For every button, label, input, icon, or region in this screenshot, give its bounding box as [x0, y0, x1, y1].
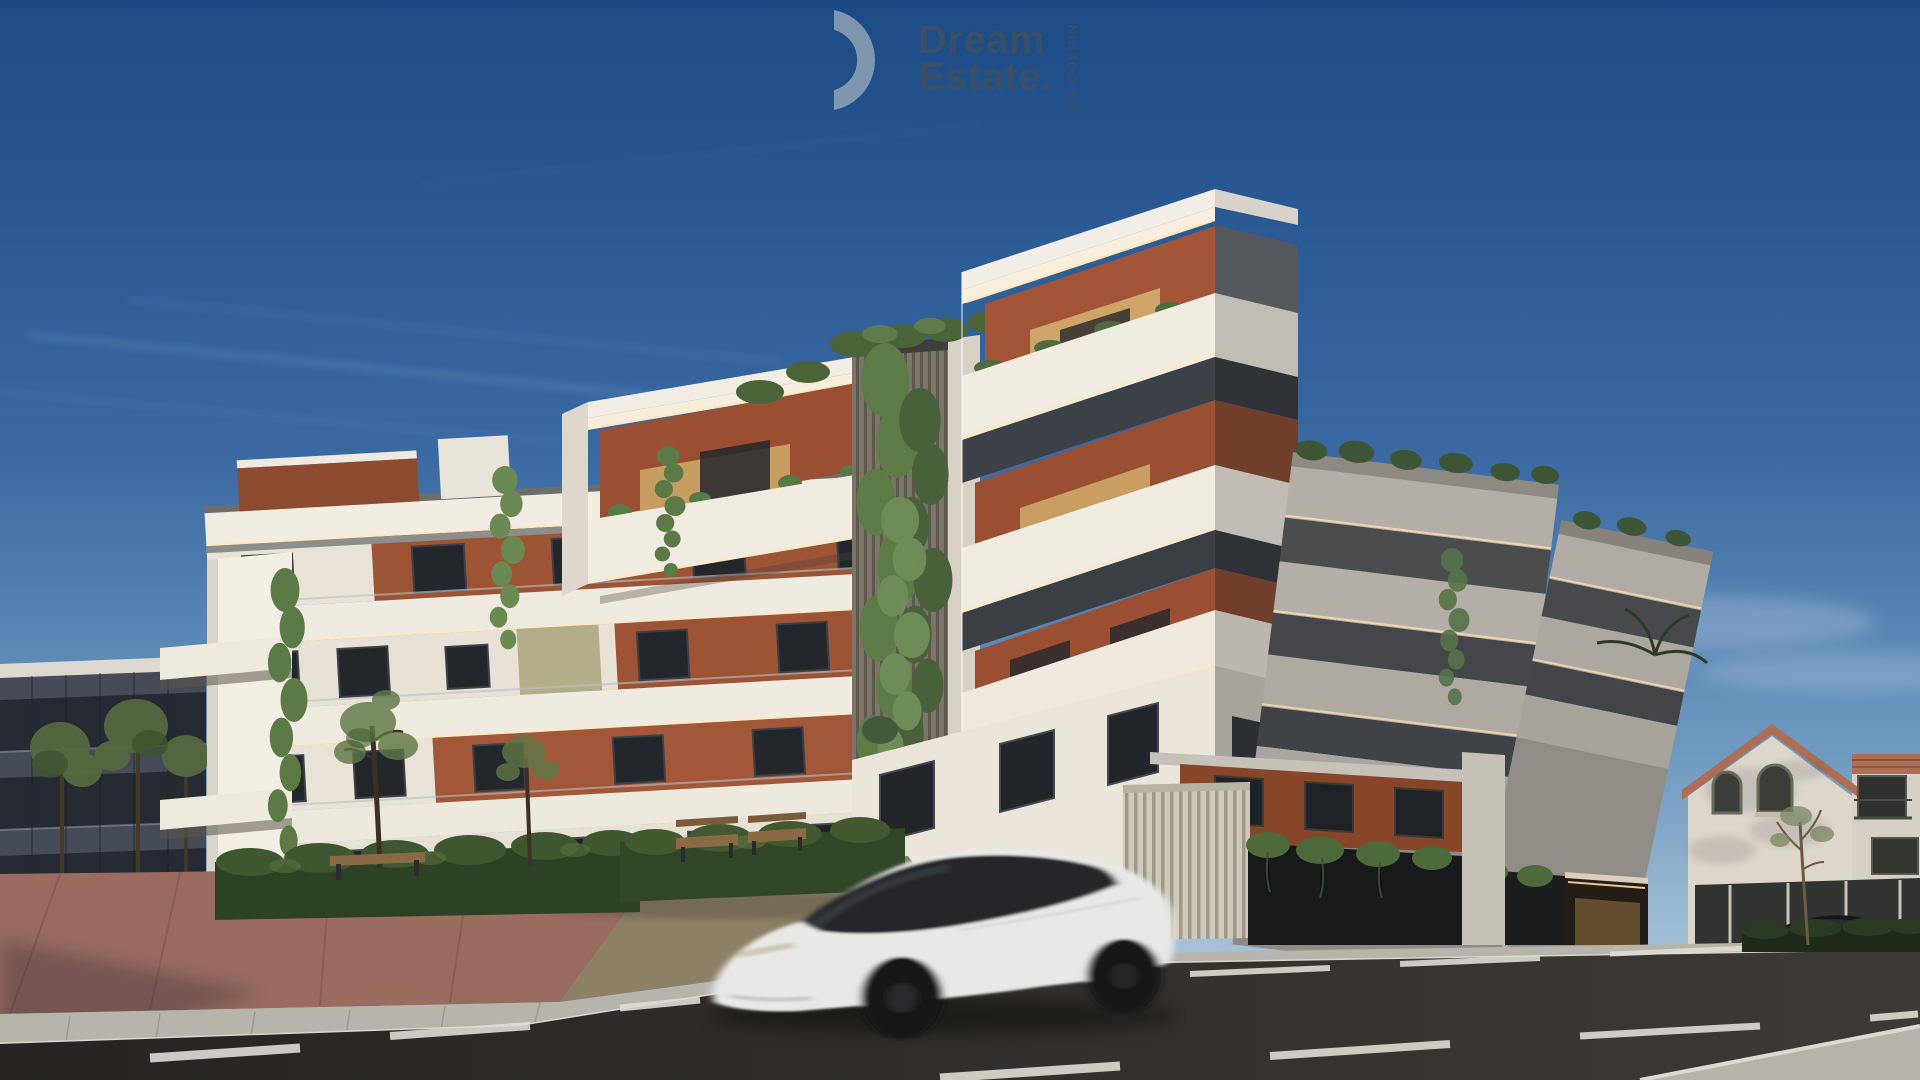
- vertical-tagline: BY COLPIN: [1066, 24, 1080, 110]
- logo: Dream Estate.: [834, 8, 1053, 112]
- half-circle-logo-icon: [834, 8, 888, 112]
- garage-interior-glow: [1575, 898, 1640, 945]
- render-canvas: Dream Estate. BY COLPIN: [0, 0, 1920, 1080]
- low-hedge: [1741, 918, 1920, 952]
- brand-line2: Estate.: [918, 59, 1053, 96]
- roof-tile-band: [1852, 754, 1920, 774]
- brand-line1: Dream: [918, 22, 1053, 59]
- garage-opening: [1565, 872, 1648, 945]
- scene: [0, 0, 1920, 1080]
- brand-name: Dream Estate.: [918, 22, 1053, 96]
- white-pier: [1462, 752, 1505, 945]
